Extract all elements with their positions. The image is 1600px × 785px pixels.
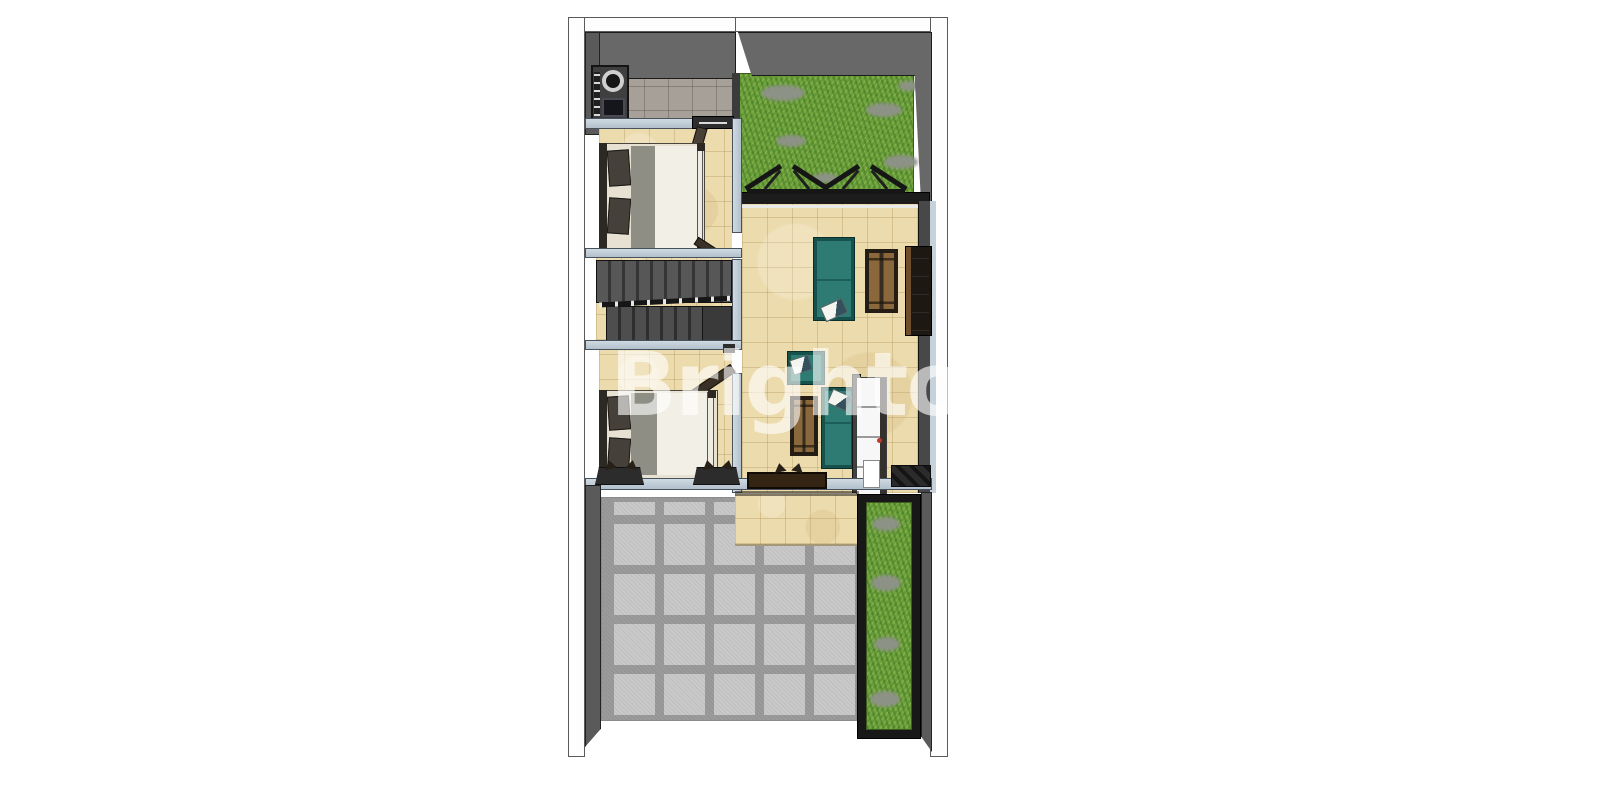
bed-duvet (657, 393, 707, 475)
pergola-truss (747, 164, 827, 194)
wood-coffee-table (790, 396, 818, 456)
terrace-step (735, 494, 859, 546)
sofa-seat-divider (817, 279, 851, 281)
bed-pillow (607, 197, 631, 234)
wood-bench (865, 249, 898, 313)
garden-stone (776, 135, 806, 147)
console-wood-edge (906, 247, 911, 335)
page: { "watermark": { "text": "Brighton" }, "… (0, 0, 1600, 785)
truss-bar (825, 189, 905, 194)
stove-oven-door (602, 98, 625, 117)
bed-headboard (599, 143, 607, 253)
console-shelf-lines (912, 251, 929, 331)
teal-armchair (787, 351, 825, 385)
planter-stone (871, 575, 901, 591)
bed-blanket (631, 393, 657, 475)
stove-burner-icon (602, 70, 624, 92)
terrace-shadow (735, 491, 859, 496)
garden-stone (866, 103, 902, 117)
bed-upper (599, 143, 705, 253)
sofa-seat-divider (825, 422, 851, 424)
bed-post (697, 143, 705, 151)
teal-sofa-long (813, 237, 855, 321)
tv-console (905, 246, 932, 336)
garden-stone (761, 85, 805, 101)
entry-door-gap (863, 460, 880, 488)
entry-threshold-ramp (891, 465, 931, 487)
bedroom-wall-segment (732, 118, 742, 233)
truss-bar (747, 189, 827, 194)
pergola-truss (825, 164, 905, 194)
bed-duvet (655, 146, 697, 250)
bed-footboard (697, 145, 703, 251)
cabinet-red-knob (877, 438, 882, 443)
carport-left-wall (585, 485, 601, 747)
bedroom-upper-south-wall (585, 248, 742, 258)
bedroom-wall-segment (732, 259, 742, 343)
outer-wall-left (568, 17, 585, 757)
window-canopy (693, 467, 740, 485)
stove-unit (591, 65, 629, 121)
planter-stone (872, 517, 900, 531)
carport-right-wall (921, 492, 932, 752)
cabinet-side-strip (880, 378, 886, 494)
teal-sofa-short (821, 387, 855, 469)
beam-light-sliver (742, 205, 920, 208)
bed-headboard (599, 390, 607, 480)
floorplan-render: Brighton (566, 15, 950, 760)
east-wall-blue-sliver (930, 201, 936, 493)
bed-post (708, 390, 716, 398)
garden-wall-top (734, 32, 932, 76)
bed-pillow (607, 395, 631, 430)
planter-stone (870, 691, 900, 707)
bed-pillow (607, 149, 631, 186)
main-door-mat (747, 472, 827, 489)
planter-stone (874, 637, 900, 651)
stair-hall-south-wall (585, 340, 742, 350)
outer-wall-top-divider (735, 17, 736, 32)
door-frame-slit (699, 122, 727, 124)
bed-blanket (631, 146, 655, 250)
stairs-landing (702, 306, 732, 341)
outer-wall-top (568, 17, 934, 32)
stove-knob-strip (594, 72, 600, 116)
bed-lower (599, 390, 718, 480)
bedroom-lower-door-frame (723, 344, 735, 353)
